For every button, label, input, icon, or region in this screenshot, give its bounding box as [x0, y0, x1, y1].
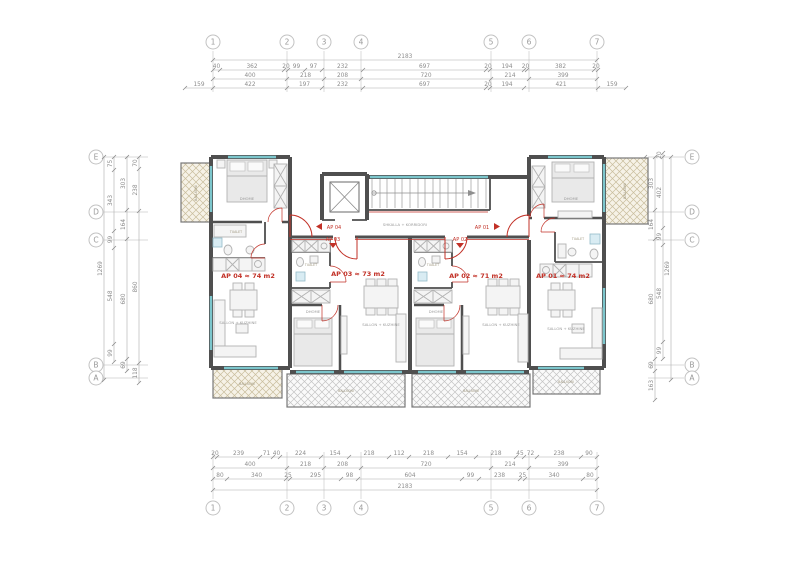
chair — [366, 279, 375, 286]
dim-value: 421 — [555, 82, 566, 88]
dim-value: 194 — [501, 64, 512, 70]
balcony-label: BALLKONI — [623, 183, 627, 199]
chair — [510, 279, 519, 286]
dim-value: 20 — [657, 151, 663, 159]
dim-value: 197 — [299, 82, 310, 88]
grid-bubble-label-B: B — [689, 361, 694, 370]
sink — [432, 256, 440, 263]
grid-bubble-label-7: 7 — [595, 504, 600, 513]
dim-value: 80 — [586, 473, 594, 479]
chair — [388, 279, 397, 286]
dim-value: 232 — [337, 64, 348, 70]
grid-bubble-label-D: D — [93, 208, 99, 217]
dim-value: 208 — [337, 462, 348, 468]
pillow — [419, 320, 434, 328]
dim-value: 295 — [310, 473, 321, 479]
dim-value: 194 — [501, 82, 512, 88]
dining-table — [486, 286, 520, 308]
grid-bubble-label-A: A — [689, 374, 695, 383]
chair — [499, 308, 508, 315]
dim-value: 218 — [490, 451, 501, 457]
tv-unit — [463, 316, 469, 354]
sink — [568, 248, 576, 256]
balcony-label: BALLKONI — [463, 389, 479, 393]
pillow — [555, 164, 570, 172]
balcony-label: BALLKONI — [338, 389, 354, 393]
grid-bubble-label-C: C — [93, 236, 98, 245]
pillow — [248, 162, 263, 171]
chair — [551, 283, 560, 290]
dim-value: 97 — [310, 64, 318, 70]
dim-value: 99 — [108, 349, 114, 357]
coffee-table — [236, 324, 248, 333]
dim-value: 214 — [504, 462, 515, 468]
room-label-bath: TUALET — [426, 263, 439, 267]
chair — [563, 310, 572, 317]
dim-value: 99 — [108, 236, 114, 244]
dim-value: 2183 — [398, 484, 413, 490]
chair — [245, 310, 254, 317]
tv-unit — [341, 316, 347, 354]
dim-value: 99 — [293, 64, 301, 70]
grid-bubble-label-2: 2 — [285, 504, 290, 513]
dim-value: 402 — [657, 187, 663, 198]
grid-bubble-label-4: 4 — [359, 38, 364, 47]
dim-value: 548 — [657, 288, 663, 299]
dim-value: 70 — [133, 159, 139, 167]
dim-value: 218 — [300, 462, 311, 468]
dim-value: 218 — [300, 73, 311, 79]
entry-label-ap04: AP 04 — [327, 225, 341, 231]
dim-value: 159 — [193, 82, 204, 88]
grid-bubble-label-5: 5 — [489, 38, 494, 47]
floor-plan — [181, 157, 648, 407]
dim-value: 232 — [337, 82, 348, 88]
dim-value: 400 — [244, 73, 255, 79]
chair — [377, 279, 386, 286]
dim-value: 20 — [592, 64, 600, 70]
chair — [377, 308, 386, 315]
dining-table — [230, 290, 257, 310]
grid-bubble-label-5: 5 — [489, 504, 494, 513]
entry-label-ap01: AP 01 — [475, 225, 489, 231]
dim-value: 80 — [216, 473, 224, 479]
room-label-living: SALLON + KUZHINE — [219, 320, 257, 325]
dim-value: 303 — [649, 178, 655, 189]
chair — [366, 308, 375, 315]
dim-value: 382 — [555, 64, 566, 70]
dim-value: 2183 — [398, 54, 413, 60]
chair — [245, 283, 254, 290]
dim-value: 362 — [246, 64, 257, 70]
chair — [499, 279, 508, 286]
washing-machine — [213, 238, 222, 247]
area-label-ap04: AP 04 ≈ 74 m2 — [221, 272, 275, 280]
dim-value: 164 — [121, 219, 127, 230]
room-label-bedroom: DHOME — [306, 309, 321, 314]
dim-value: 118 — [133, 367, 139, 378]
dim-value: 340 — [251, 473, 262, 479]
dim-value: 218 — [363, 451, 374, 457]
toilet — [590, 249, 598, 259]
dim-value: 20 — [484, 82, 492, 88]
dim-value: 214 — [504, 73, 515, 79]
dim-value: 238 — [553, 451, 564, 457]
dim-value: 159 — [606, 82, 617, 88]
dim-value: 239 — [233, 451, 244, 457]
dim-value: 20 — [211, 451, 219, 457]
dim-value: 164 — [649, 219, 655, 230]
dim-value: 399 — [557, 73, 568, 79]
dim-value: 340 — [548, 473, 559, 479]
dim-value: 154 — [456, 451, 467, 457]
elevator — [330, 182, 359, 212]
dim-value: 422 — [244, 82, 255, 88]
grid-bubble-label-3: 3 — [322, 38, 327, 47]
entry-label-ap02: AP 02 — [453, 237, 467, 243]
dim-value: 98 — [346, 473, 354, 479]
dim-value: 697 — [419, 82, 430, 88]
dim-value: 25 — [284, 473, 292, 479]
dim-value: 154 — [329, 451, 340, 457]
dim-value: 40 — [213, 64, 221, 70]
chair — [233, 283, 242, 290]
dim-value: 20 — [282, 64, 290, 70]
dim-value: 720 — [420, 73, 431, 79]
pillow — [297, 320, 312, 328]
room-label-corridor: SHKALLA + KORRIDORI — [383, 222, 427, 227]
area-label-ap01: AP 01 ≈ 74 m2 — [536, 272, 590, 280]
grid-bubble-label-C: C — [689, 236, 694, 245]
sofa — [560, 348, 602, 359]
dim-value: 604 — [404, 473, 415, 479]
toilet — [419, 258, 426, 267]
floor-plan-canvas: 12345671234567EDCBAEDCBA 218340362209997… — [0, 0, 800, 566]
balcony-label: BALLKONI — [194, 185, 198, 201]
dim-value: 399 — [557, 462, 568, 468]
dim-value: 112 — [393, 451, 404, 457]
grid-bubble-label-7: 7 — [595, 38, 600, 47]
toilet — [224, 245, 232, 255]
grid-bubble-label-E: E — [94, 153, 99, 162]
grid-bubble-label-2: 2 — [285, 38, 290, 47]
dim-value: 238 — [133, 184, 139, 195]
room-label-bedroom: DHOME — [240, 196, 255, 201]
dim-value: 99 — [657, 233, 663, 241]
chair — [551, 310, 560, 317]
room-label-living: SALLON + KUZHINE — [362, 322, 400, 327]
dim-value: 860 — [133, 281, 139, 292]
pillow — [574, 164, 589, 172]
chair — [488, 308, 497, 315]
dim-value: 99 — [657, 347, 663, 355]
dim-value: 224 — [295, 451, 306, 457]
dim-value: 72 — [527, 451, 535, 457]
room-label-living: SALLON + KUZHINE — [482, 322, 520, 327]
dining-table — [364, 286, 398, 308]
washing-machine — [590, 234, 600, 244]
dim-value: 218 — [423, 451, 434, 457]
washing-machine — [296, 272, 305, 281]
dim-value: 697 — [419, 64, 430, 70]
grid-bubble-label-B: B — [93, 361, 98, 370]
dim-value: 400 — [244, 462, 255, 468]
dim-value: 720 — [420, 462, 431, 468]
dresser — [558, 211, 592, 218]
dim-value: 208 — [337, 73, 348, 79]
dim-value: 1269 — [98, 261, 104, 276]
room-label-bath: TUALET — [304, 263, 317, 267]
grid-bubble-label-1: 1 — [211, 38, 216, 47]
floor-plan-sheet: 12345671234567EDCBAEDCBA 218340362209997… — [0, 0, 800, 566]
area-label-ap02: AP 02 ≈ 71 m2 — [449, 272, 503, 280]
washing-machine — [418, 272, 427, 281]
dim-value: 20 — [484, 64, 492, 70]
dim-value: 163 — [649, 380, 655, 391]
dim-value: 20 — [522, 64, 530, 70]
area-label-ap03: AP 03 ≈ 73 m2 — [331, 270, 385, 278]
balcony-label: BALLKONI — [239, 382, 255, 386]
sofa — [214, 346, 256, 357]
dining-table — [548, 290, 575, 310]
grid-bubble-label-6: 6 — [527, 504, 532, 513]
dim-value: 40 — [273, 451, 281, 457]
room-label-bedroom: DHOME — [429, 309, 444, 314]
room-label-bath: TUALET — [571, 237, 584, 241]
room-label-living: SALLON + KUZHINE — [547, 326, 585, 331]
dim-value: 680 — [121, 293, 127, 304]
grid-bubble-label-3: 3 — [322, 504, 327, 513]
room-label-bedroom: DHOME — [564, 196, 579, 201]
dim-value: 238 — [494, 473, 505, 479]
dim-value: 90 — [585, 451, 593, 457]
entry-label-ap03: AP 03 — [326, 237, 340, 243]
sink — [310, 256, 318, 263]
dim-value: 343 — [108, 195, 114, 206]
dim-value: 71 — [263, 451, 271, 457]
dim-value: 45 — [516, 451, 524, 457]
grid-bubble-label-A: A — [93, 374, 99, 383]
dim-value: 548 — [108, 290, 114, 301]
grid-bubble-label-E: E — [690, 153, 695, 162]
pillow — [230, 162, 245, 171]
dim-value: 69 — [121, 361, 127, 369]
grid-bubble-label-D: D — [689, 208, 695, 217]
chair — [488, 279, 497, 286]
dim-value: 303 — [121, 178, 127, 189]
dim-value: 1269 — [665, 261, 671, 276]
grid-bubble-label-4: 4 — [359, 504, 364, 513]
dim-value: 25 — [519, 473, 527, 479]
grid-bubble-label-6: 6 — [527, 38, 532, 47]
chair — [563, 283, 572, 290]
nightstand — [217, 160, 225, 168]
dim-value: 75 — [108, 160, 114, 168]
room-label-bath: TUALET — [229, 230, 242, 234]
dim-value: 69 — [649, 361, 655, 369]
dim-value: 99 — [467, 473, 475, 479]
shower — [558, 244, 566, 258]
sink — [246, 246, 254, 254]
balcony-label: BALLKONI — [558, 380, 574, 384]
dim-value: 680 — [649, 293, 655, 304]
grid-bubble-label-1: 1 — [211, 504, 216, 513]
chair — [233, 310, 242, 317]
toilet — [297, 258, 304, 267]
